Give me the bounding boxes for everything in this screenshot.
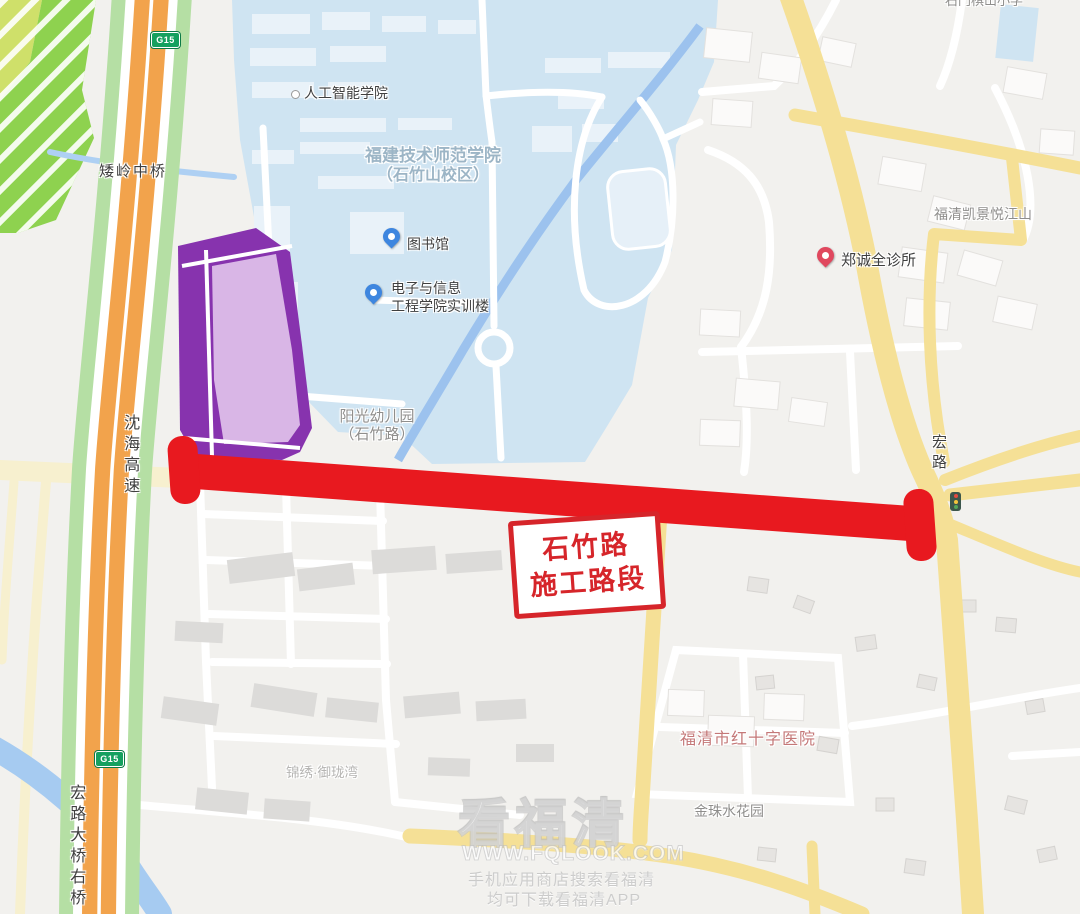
construction-cap-east xyxy=(903,488,938,562)
watermark-line2: 均可下载看福清APP xyxy=(487,886,641,910)
construction-label-box: 石竹路 施工路段 xyxy=(508,511,666,619)
watermark-url: WWW.FQLOOK.COM xyxy=(462,842,685,866)
school-top-right-label[interactable]: 石门棋山小学 xyxy=(945,0,1023,9)
g15-badge-north: G15 xyxy=(151,32,180,48)
construction-label-line2: 施工路段 xyxy=(529,561,647,604)
hospital-label[interactable]: 福清市红十字医院 xyxy=(680,730,816,749)
university-line1: 福建技术师范学院 xyxy=(338,146,528,166)
library-label[interactable]: 图书馆 xyxy=(407,236,449,253)
poi-dot-icon xyxy=(291,90,300,99)
training-label-line1[interactable]: 电子与信息 xyxy=(391,280,461,297)
kindergarten-line1: 阳光幼儿园 xyxy=(312,408,442,426)
traffic-light-icon xyxy=(950,492,961,511)
training-label-line2[interactable]: 工程学院实训楼 xyxy=(391,298,489,315)
clinic-label[interactable]: 郑诚全诊所 xyxy=(841,252,916,270)
university-line2: （石竹山校区） xyxy=(338,166,528,185)
expressway-label: 沈海高速 xyxy=(120,414,139,498)
ai-college-label[interactable]: 人工智能学院 xyxy=(304,85,388,102)
kaijing-estate-label[interactable]: 福清凯景悦江山 xyxy=(934,206,1032,223)
construction-cap-west xyxy=(167,435,202,505)
honglu-road-label: 宏路 xyxy=(929,434,947,474)
map: G15 G15 矮岭中桥 沈海高速 宏路 宏路大桥右桥 人工智能学院 福建技术师… xyxy=(0,0,1080,914)
kindergarten-label[interactable]: 阳光幼儿园 （石竹路） xyxy=(312,408,442,444)
jinzhu-estate-label[interactable]: 金珠水花园 xyxy=(694,803,764,820)
campus-pond xyxy=(606,167,672,251)
g15-badge-south: G15 xyxy=(95,751,124,767)
kindergarten-line2: （石竹路） xyxy=(312,426,442,444)
bridge-top-label: 矮岭中桥 xyxy=(99,163,167,181)
map-canvas xyxy=(0,0,1080,914)
jinxiu-estate-label[interactable]: 锦绣·御珑湾 xyxy=(286,765,358,781)
university-label: 福建技术师范学院 （石竹山校区） xyxy=(338,146,528,186)
bridge-bottom-label: 宏路大桥右桥 xyxy=(66,784,85,910)
